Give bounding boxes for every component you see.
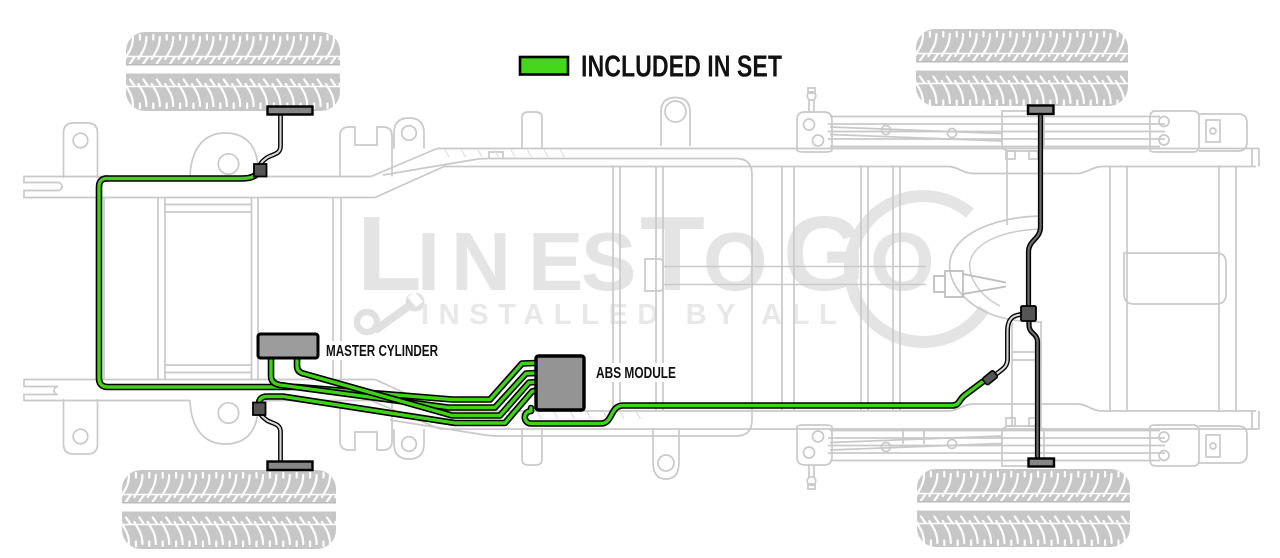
svg-text:T: T [640,195,705,313]
svg-text:INCLUDED IN SET: INCLUDED IN SET [581,50,782,84]
svg-text:N: N [451,215,511,308]
svg-text:ABS MODULE: ABS MODULE [596,365,676,382]
svg-text:MASTER CYLINDER: MASTER CYLINDER [326,343,438,360]
svg-text:L: L [357,195,422,313]
svg-text:G: G [783,195,865,313]
svg-text:S: S [581,215,636,308]
svg-text:O: O [870,215,935,308]
svg-text:I: I [417,215,440,308]
svg-text:E: E [528,215,583,308]
svg-text:O: O [703,215,768,308]
